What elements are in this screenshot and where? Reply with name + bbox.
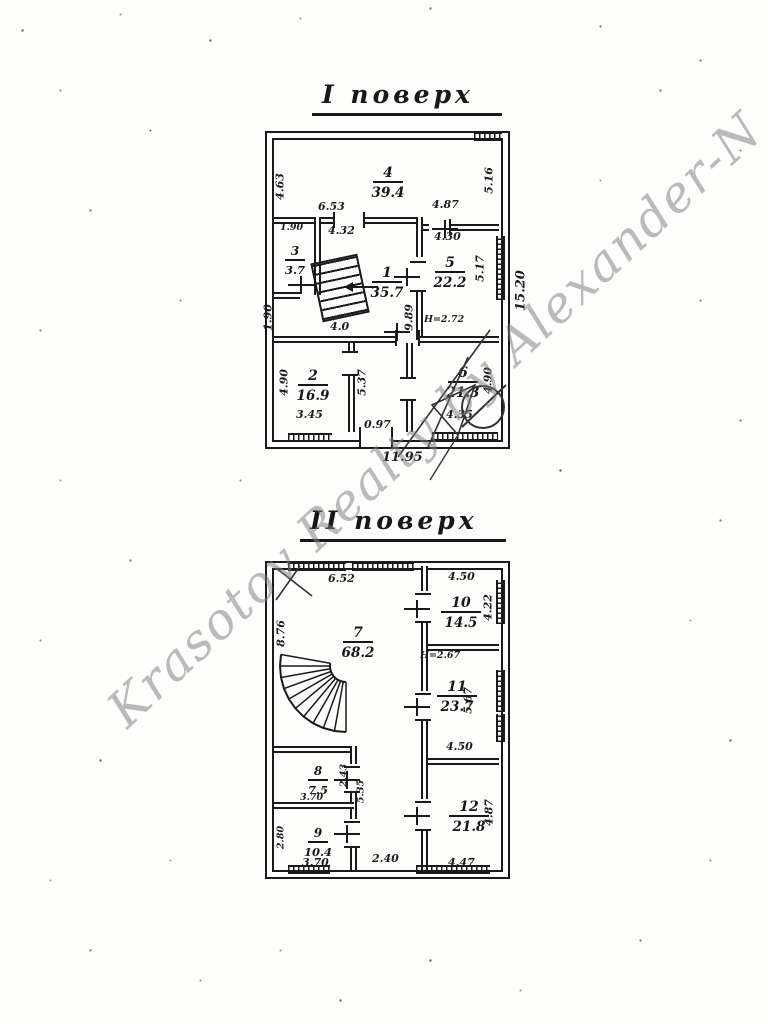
wall [274, 292, 300, 299]
room-area: 22.2 [425, 273, 475, 291]
dim-label: 3.45 [296, 408, 323, 421]
dim-label: 1.90 [262, 288, 275, 348]
door-jamb [415, 829, 431, 831]
room11-label: 11 23.7 [432, 676, 482, 715]
window [496, 714, 505, 742]
dim-label: 2.40 [372, 852, 399, 865]
dim-label: 5.16 [483, 151, 496, 211]
wall [348, 375, 355, 432]
dim-label: 2.80 [276, 808, 287, 868]
room-number: 3 [285, 244, 305, 261]
dim-label: 5.35 [356, 762, 367, 822]
room-area: 23.7 [432, 697, 482, 715]
wall [416, 217, 423, 257]
survey-cross [404, 815, 430, 817]
room5-label: 5 22.2 [425, 252, 475, 291]
dim-label: 3.70 [302, 856, 329, 869]
survey-cross [404, 608, 430, 610]
room-number: 1 [372, 266, 402, 283]
door-jamb [415, 693, 431, 695]
dim-label: 4.0 [330, 320, 349, 333]
dim-label: 4.87 [483, 783, 496, 843]
door-jamb [344, 846, 360, 848]
dim-label: 4.47 [448, 856, 475, 869]
window [352, 562, 414, 571]
window [474, 132, 502, 141]
dim-label: 2.43 [339, 746, 350, 806]
dim-label: 8.76 [275, 604, 288, 664]
dim-label: 5.37 [356, 353, 369, 413]
door-jamb [415, 621, 431, 623]
room-area: 68.2 [330, 643, 386, 661]
wall [421, 830, 428, 870]
wall [421, 720, 428, 799]
dim-label: 4.30 [434, 230, 461, 243]
room-number: 4 [373, 166, 403, 183]
dim-label: 4.87 [432, 198, 459, 211]
wall [428, 758, 499, 765]
room-area: 14.5 [436, 613, 486, 631]
dim-label: 5.17 [474, 239, 487, 299]
dim-label: 3.70 [300, 792, 323, 803]
room-number: 9 [308, 826, 328, 843]
dim-label: 4.90 [278, 353, 291, 413]
door-jamb [363, 212, 365, 228]
door-jamb [415, 801, 431, 803]
room-area: 3.7 [278, 261, 312, 277]
dim-label: 5.67 [462, 671, 475, 731]
wall [363, 217, 420, 224]
room-area: 16.9 [288, 386, 338, 404]
survey-cross [288, 284, 314, 286]
floor1-title: I поверх [312, 80, 502, 116]
window [288, 433, 332, 442]
room-number: 7 [343, 626, 373, 643]
room7-label: 7 68.2 [330, 622, 386, 661]
door-jamb [415, 719, 431, 721]
door-jamb [415, 593, 431, 595]
room-number: 10 [441, 596, 480, 613]
room10-label: 10 14.5 [436, 592, 486, 631]
dim-label: 4.50 [448, 570, 475, 583]
dim-label: 4.63 [274, 157, 287, 217]
room3-label: 3 3.7 [278, 240, 312, 277]
room-number: 2 [298, 369, 328, 386]
window [496, 236, 505, 300]
room4-label: 4 39.4 [360, 162, 416, 201]
wall [421, 566, 428, 591]
scan-noise [0, 0, 1, 1]
dim-label: 4.22 [482, 578, 495, 638]
room-number: 8 [308, 764, 328, 781]
door-jamb [410, 261, 426, 263]
stair-arrow-head [344, 282, 353, 292]
height-note: H=2.67 [420, 650, 460, 661]
window [496, 580, 505, 624]
room9-label: 9 10.4 [296, 822, 340, 859]
wall [423, 224, 429, 231]
door-jamb [359, 427, 361, 447]
room-number: 5 [435, 256, 465, 273]
window [496, 670, 505, 712]
wall [350, 848, 357, 870]
scanned-floor-plan-sheet: I поверх 4 39.4 3 3. [0, 0, 768, 1024]
room2-label: 2 16.9 [288, 365, 338, 404]
dim-label: 6.53 [318, 200, 345, 213]
survey-cross [404, 706, 430, 708]
room-area: 39.4 [360, 183, 416, 201]
dim-label: 1.90 [280, 222, 303, 233]
dim-label: 4.32 [328, 224, 355, 237]
dim-label: 4.50 [446, 740, 473, 753]
dim-label: 6.52 [328, 572, 355, 585]
